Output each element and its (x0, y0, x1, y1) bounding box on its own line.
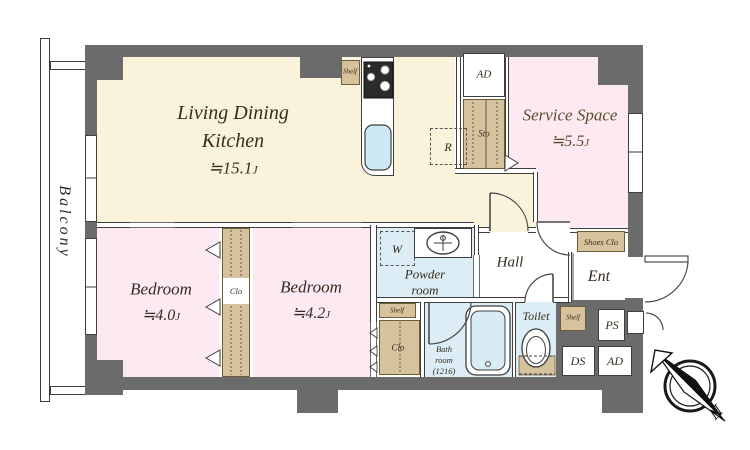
ds-label: DS (571, 355, 586, 367)
sliding-door-bedroom-b (292, 222, 362, 228)
balcony-label: Balcony (56, 185, 72, 258)
wall-bath-toilet (512, 302, 516, 377)
ps-label: PS (605, 319, 618, 331)
ad-bottom-label: AD (607, 355, 623, 367)
bath-room-label-2: room (435, 356, 453, 365)
window-bedroom-a (85, 238, 97, 335)
bedroom-b-label: Bedroom (280, 279, 342, 296)
service-space-label: Service Space (523, 107, 618, 124)
wall-right-upper (628, 45, 643, 113)
fridge-label: R (444, 141, 451, 153)
ldk-label-2: Kitchen (202, 131, 264, 151)
shelf-toilet-label: Shelf (566, 315, 580, 322)
window-ldk (85, 135, 97, 222)
powder-room-label-1: Powder (405, 268, 445, 281)
wall-left-mid (85, 222, 97, 238)
shelf-powder-label: Shelf (390, 308, 404, 315)
wall-bottom (85, 377, 643, 390)
ad-top-label: AD (477, 70, 492, 81)
closet-hall-label: Clo (391, 344, 404, 353)
bedroom-b-floor (253, 228, 370, 377)
entrance-door (645, 256, 688, 302)
wall-hall-top-right (528, 227, 536, 233)
wall-ldk-service (533, 172, 538, 222)
compass-north-label: N (704, 400, 727, 423)
sto-label: Sto (478, 130, 490, 139)
ent-label: Ent (588, 269, 610, 285)
ldk-label-1: Living Dining (177, 103, 289, 123)
shelf-kitchen-label: Shelf (343, 69, 357, 76)
powder-sink-counter (414, 228, 472, 258)
wall-left-upper (85, 45, 97, 135)
folding-door-closet-hall (370, 322, 377, 377)
service-space-area: ≒5.5J (551, 134, 589, 150)
ldk-area: ≒15.1J (208, 160, 257, 177)
bedroom-a-area: ≒4.0J (142, 308, 180, 324)
wall-bedroom-b-right (370, 225, 377, 322)
washer-label: W (392, 243, 402, 255)
compass-icon: N (651, 350, 728, 423)
wall-top-mid-block (300, 45, 342, 78)
powder-room-label-2: room (412, 284, 439, 297)
hall-label: Hall (497, 256, 524, 271)
balcony-connector-top (50, 61, 86, 70)
sliding-door-powder (473, 255, 480, 300)
ldk-floor (97, 57, 455, 225)
wall-right-mid (628, 193, 643, 257)
balcony-connector-bottom (50, 386, 86, 395)
bedroom-a-floor (97, 228, 219, 377)
wall-ent-step (568, 252, 572, 302)
wall-closet-bath (420, 302, 425, 377)
balcony-rail (40, 38, 50, 402)
closet-bedrooms-label: Clo (230, 287, 242, 296)
wall-bottom-pier-2 (602, 377, 643, 413)
window-service-space (628, 113, 643, 193)
bedroom-a-label: Bedroom (130, 281, 192, 298)
sliding-door-bedroom-a (130, 222, 175, 228)
wall-top (85, 45, 643, 57)
kitchen-counter (361, 57, 394, 176)
bath-room-label-1: Bath (436, 345, 452, 354)
bath-room-label-3: (1216) (433, 367, 456, 376)
toilet-label: Toilet (523, 310, 550, 322)
meter-box (627, 311, 644, 334)
wall-kitchen-column-right (505, 57, 509, 168)
floor-plan: N Balcony Living Dining Kitchen ≒15.1J S… (0, 0, 750, 450)
wall-bottom-pier-1 (297, 377, 338, 413)
shoes-closet-label: Shoes Clo (584, 238, 618, 247)
bedroom-b-area: ≒4.2J (292, 306, 330, 322)
